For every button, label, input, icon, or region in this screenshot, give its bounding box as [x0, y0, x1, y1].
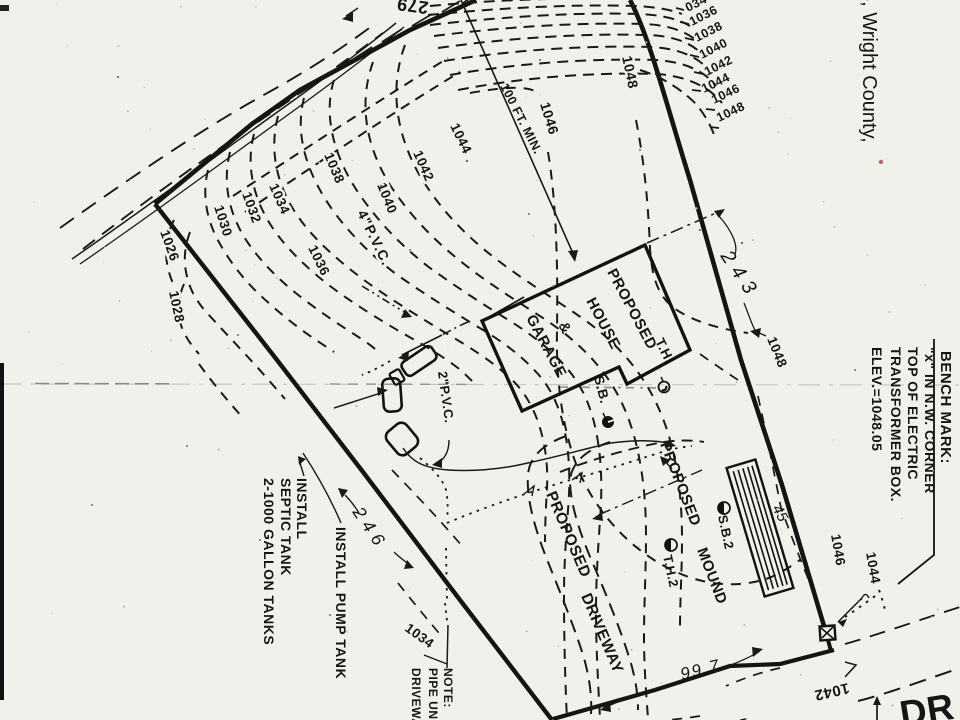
svg-text:"x" IN N.W. CORNER: "x" IN N.W. CORNER — [922, 347, 938, 494]
svg-text:5, Wright County,: 5, Wright County, — [858, 0, 880, 143]
svg-text:TRANSFORMER BOX.: TRANSFORMER BOX. — [888, 347, 904, 502]
svg-text:SEPTIC TANK: SEPTIC TANK — [278, 478, 294, 576]
svg-text:PIPE UNDE: PIPE UNDE — [426, 668, 440, 720]
svg-text:ELEV.=1048.05: ELEV.=1048.05 — [869, 347, 885, 451]
svg-text:2-1000 GALLON TANKS: 2-1000 GALLON TANKS — [261, 478, 277, 645]
svg-text:NOTE:: NOTE: — [441, 668, 455, 708]
svg-text:TOP OF ELECTRIC: TOP OF ELECTRIC — [905, 347, 921, 480]
svg-text:DRIVEWA: DRIVEWA — [409, 668, 423, 720]
svg-text:BENCH MARK:: BENCH MARK: — [937, 351, 954, 464]
svg-text:INSTALL: INSTALL — [294, 478, 310, 540]
svg-text:INSTALL PUMP TANK: INSTALL PUMP TANK — [333, 527, 349, 679]
